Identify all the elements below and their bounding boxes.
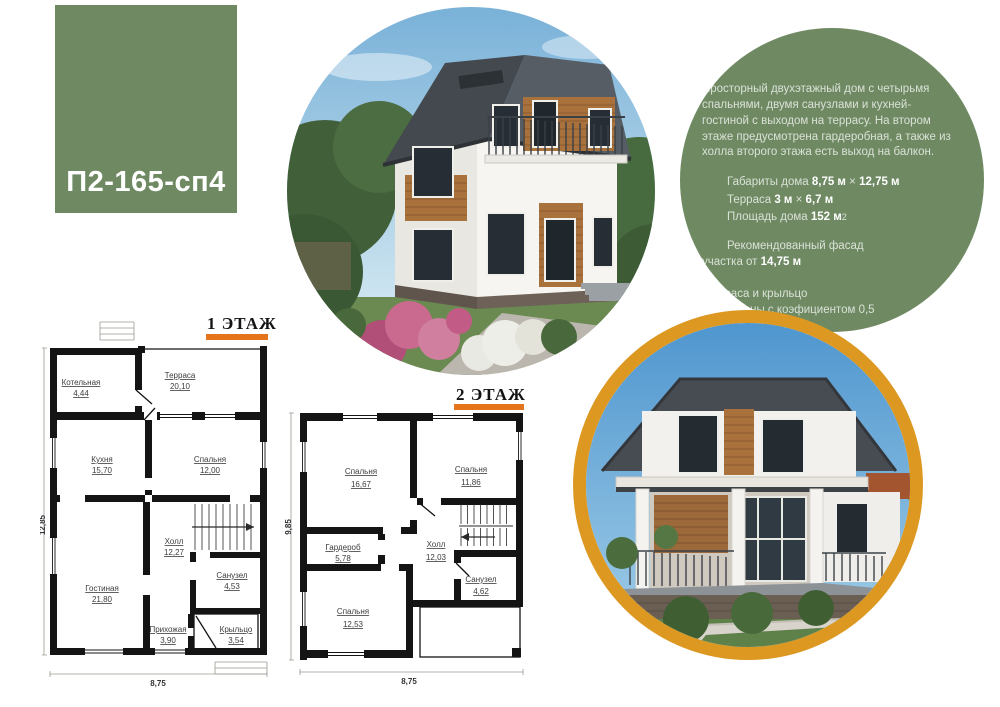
floor1-exterior-steps <box>100 322 134 340</box>
spec-terrace: Терраса 3 м × 6,7 м <box>727 192 952 209</box>
plan-code-badge: П2-165-сп4 <box>55 5 237 213</box>
floor1-title: 1 ЭТАЖ <box>207 314 277 334</box>
description-paragraph: Просторный двухэтажный дом с четырьмя сп… <box>702 82 952 161</box>
floor1-dim-left: 12,85 <box>40 514 47 535</box>
floor2-dim-left: 9,85 <box>284 519 293 535</box>
floor1-stairs <box>192 504 254 550</box>
house-front-illustration <box>287 7 655 375</box>
floor1-dim-bottom: 8,75 <box>150 679 166 688</box>
floor2-dim-bottom: 8,75 <box>401 677 417 686</box>
room-area: 3,54 <box>228 636 244 645</box>
floor1-title-underline <box>206 334 268 340</box>
room-area: 20,10 <box>170 382 191 391</box>
room-label: Санузел <box>465 575 496 584</box>
entry-stairs <box>581 283 639 301</box>
room-label: Крыльцо <box>220 625 253 634</box>
floor2-title-underline <box>454 404 524 410</box>
house-terrace-photo <box>573 310 923 660</box>
room-label: Холл <box>165 537 184 546</box>
brochure-page: П2-165-сп4 <box>0 0 1000 707</box>
spec-area: Площадь дома 152 м2 <box>727 209 952 226</box>
floor2-plan: 9,85 8,75 Спальня 16,67 Спальня 11,86 Га… <box>283 382 540 692</box>
house-front-photo <box>287 7 655 375</box>
plan-code-label: П2-165-сп4 <box>66 166 225 199</box>
room-label: Гостиная <box>85 584 119 593</box>
facade-note: Рекомендованный фасад участка от 14,75 м <box>702 239 952 271</box>
description-content: Просторный двухэтажный дом с четырьмя сп… <box>702 82 952 319</box>
room-label: Котельная <box>62 378 101 387</box>
room-area: 4,44 <box>73 389 89 398</box>
room-area: 15,70 <box>92 466 113 475</box>
room-label: Кухня <box>91 455 112 464</box>
description-circle: Просторный двухэтажный дом с четырьмя сп… <box>680 28 984 332</box>
room-area: 4,53 <box>224 582 240 591</box>
room-area: 5,78 <box>335 554 351 563</box>
floor2-stairs <box>459 504 513 546</box>
room-area: 12,00 <box>200 466 221 475</box>
floor1-windows-bottom <box>50 438 267 655</box>
room-label: Спальня <box>194 455 226 464</box>
room-area: 3,90 <box>160 636 176 645</box>
spec-dimensions: Габариты дома 8,75 м × 12,75 м <box>727 174 952 191</box>
room-label: Спальня <box>345 467 377 476</box>
room-area: 16,67 <box>351 480 372 489</box>
room-label: Спальня <box>337 607 369 616</box>
room-label: Терраса <box>165 371 196 380</box>
specs-block: Габариты дома 8,75 м × 12,75 м Терраса 3… <box>727 174 952 226</box>
room-label: Прихожая <box>149 625 186 634</box>
room-label: Спальня <box>455 465 487 474</box>
floor1-plan: 12,85 8,75 Котельная 4,44 Терраса 20,10 … <box>40 318 270 705</box>
room-label: Холл <box>427 540 446 549</box>
room-area: 12,53 <box>343 620 364 629</box>
floor2-title: 2 ЭТАЖ <box>456 385 526 405</box>
room-label: Санузел <box>216 571 247 580</box>
room-area: 21,80 <box>92 595 113 604</box>
room-area: 12,03 <box>426 553 447 562</box>
room-area: 4,62 <box>473 587 489 596</box>
room-area: 11,86 <box>461 478 481 487</box>
house-terrace-illustration <box>586 323 910 647</box>
room-label: Гардероб <box>325 543 361 552</box>
floor2-balcony <box>420 607 521 657</box>
room-area: 12,27 <box>164 548 185 557</box>
